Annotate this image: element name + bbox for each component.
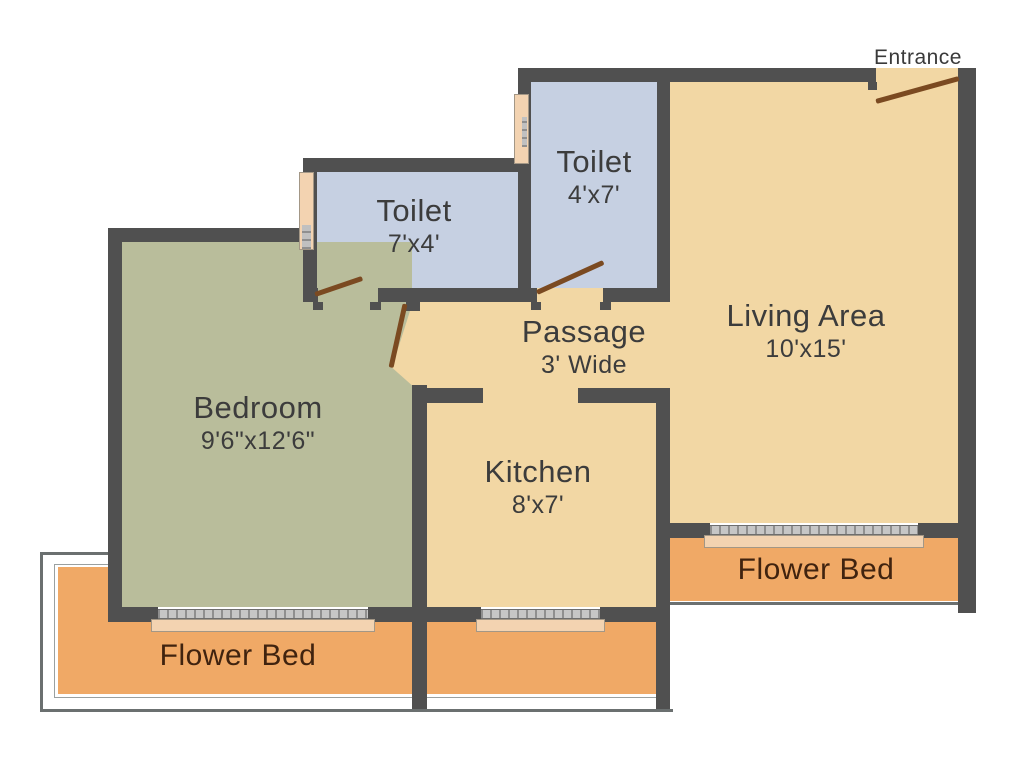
toilet-top-window xyxy=(514,94,529,164)
living-area-label: Living Area 10'x15' xyxy=(727,300,886,362)
door-jamb xyxy=(868,82,877,90)
wall-bedroom-left xyxy=(108,228,122,622)
balcony-inner-line xyxy=(54,564,108,565)
room-dims: 3' Wide xyxy=(522,352,646,378)
toilet-left-window xyxy=(299,172,314,250)
kitchen-window-sill xyxy=(476,619,605,632)
wall-right xyxy=(958,68,976,613)
living-window xyxy=(710,525,918,535)
wall-kitchen-bottom xyxy=(427,607,481,622)
balcony-outline-top xyxy=(40,552,108,555)
door-jamb xyxy=(531,302,541,310)
bedroom-door-opening xyxy=(412,301,427,387)
wall-living-bottom xyxy=(918,523,958,538)
toilet-left-label: Toilet 7'x4' xyxy=(376,195,451,257)
living-window-sill xyxy=(704,535,924,548)
room-dims: 10'x15' xyxy=(727,336,886,362)
wall-toilet-top-bottom xyxy=(603,288,670,302)
wall-bedroom-top xyxy=(108,228,317,242)
entrance-text: Entrance xyxy=(874,46,962,69)
wall-kitchen-bottom xyxy=(600,607,656,622)
wall-toilet-top-bottom xyxy=(518,288,537,302)
room-name: Flower Bed xyxy=(160,640,317,672)
wall-toilet-left-bottom xyxy=(378,288,518,302)
balcony-inner-line xyxy=(54,697,656,698)
balcony-outline-left xyxy=(40,552,43,712)
kitchen-window xyxy=(481,609,600,619)
flower-bed-left-floor xyxy=(58,567,108,694)
door-jamb xyxy=(313,302,323,310)
wall-living-bottom xyxy=(657,523,710,538)
room-name: Flower Bed xyxy=(738,554,895,586)
wall-toilet-top-right xyxy=(657,68,670,302)
room-name: Toilet xyxy=(556,146,631,179)
bedroom-window xyxy=(158,609,368,619)
bedroom-window-sill xyxy=(151,619,375,632)
door-jamb xyxy=(370,302,381,310)
room-dims: 8'x7' xyxy=(485,492,592,518)
balcony-outline-right-bed xyxy=(670,602,966,605)
balcony-outline-bottom xyxy=(40,709,673,712)
passage-label: Passage 3' Wide xyxy=(522,316,646,378)
entrance-label: Entrance xyxy=(874,46,962,70)
balcony-inner-line xyxy=(54,564,55,697)
door-jamb xyxy=(406,302,420,311)
kitchen-opening xyxy=(483,388,578,403)
room-name: Passage xyxy=(522,316,646,349)
toilet-top-label: Toilet 4'x7' xyxy=(556,146,631,208)
door-jamb xyxy=(600,302,611,310)
flower-bed-right-label: Flower Bed xyxy=(738,554,895,586)
room-dims: 9'6"x12'6" xyxy=(193,428,322,454)
kitchen-label: Kitchen 8'x7' xyxy=(485,456,592,518)
room-dims: 7'x4' xyxy=(376,231,451,257)
flower-bed-left-label: Flower Bed xyxy=(160,640,317,672)
wall-kitchen-right xyxy=(656,388,670,709)
wall-kitchen-top xyxy=(412,388,483,403)
window-hatch xyxy=(522,117,527,147)
room-name: Kitchen xyxy=(485,456,592,489)
wall-top xyxy=(518,68,876,82)
window-hatch xyxy=(302,225,311,249)
wall-toilet-left-top xyxy=(303,158,518,172)
room-dims: 4'x7' xyxy=(556,182,631,208)
wall-bedroom-kitchen-divider xyxy=(412,385,427,709)
bedroom-label: Bedroom 9'6"x12'6" xyxy=(193,392,322,454)
room-name: Living Area xyxy=(727,300,886,333)
floor-plan: Entrance Toilet 4'x7' Toilet 7'x4' Livin… xyxy=(0,0,1024,768)
room-name: Bedroom xyxy=(193,392,322,425)
room-name: Toilet xyxy=(376,195,451,228)
